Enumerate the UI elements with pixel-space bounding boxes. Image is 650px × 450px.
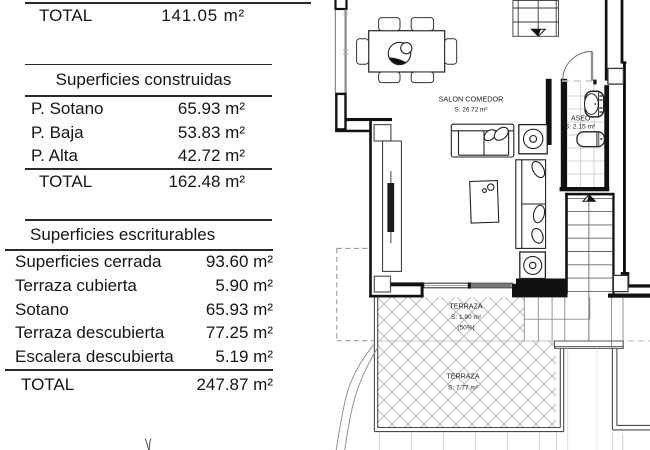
svg-text:S: 2.15 m²: S: 2.15 m² — [565, 124, 596, 131]
svg-text:(50%): (50%) — [457, 325, 474, 332]
svg-text:TERRAZA: TERRAZA — [446, 373, 479, 381]
svg-text:S: 26.72 m²: S: 26.72 m² — [454, 107, 487, 114]
svg-text:S: 7.77 m²: S: 7.77 m² — [448, 385, 479, 392]
svg-text:S: 1.90 m²: S: 1.90 m² — [451, 314, 482, 321]
svg-text:ASEO: ASEO — [571, 116, 591, 123]
svg-text:SALON COMEDOR: SALON COMEDOR — [439, 95, 504, 104]
svg-text:TERRAZA: TERRAZA — [449, 303, 482, 311]
